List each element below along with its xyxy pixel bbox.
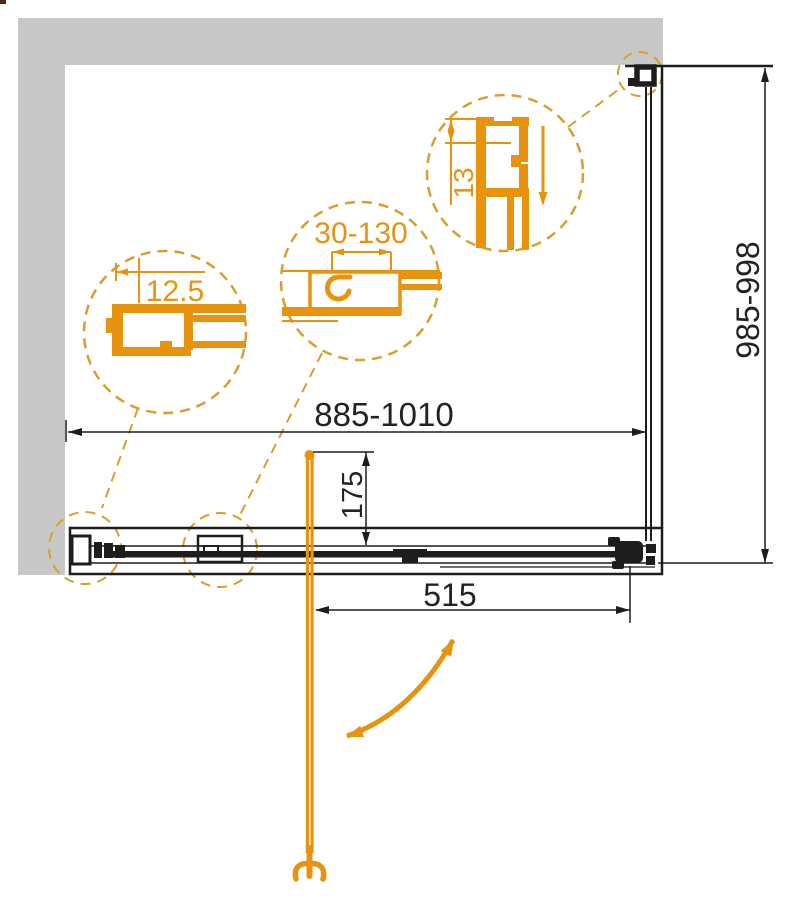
dim-door-width-label: 515 bbox=[423, 577, 476, 613]
dim-arrow bbox=[68, 428, 82, 436]
dim-arrow bbox=[632, 428, 646, 436]
leader-left bbox=[102, 408, 138, 508]
sliding-door-glass bbox=[112, 551, 618, 558]
dim-arrow bbox=[448, 131, 455, 142]
dim-handle-label: 175 bbox=[337, 471, 369, 519]
technical-drawing-page: 12.5 30-130 13 bbox=[0, 0, 791, 900]
drawing-canvas: 12.5 30-130 13 bbox=[0, 0, 791, 900]
dim-width: 885-1010 bbox=[66, 396, 646, 442]
detail-right-profile: 13 bbox=[445, 117, 548, 250]
guide-block bbox=[393, 549, 427, 557]
dim-height-label: 985-998 bbox=[730, 241, 766, 358]
handle bbox=[295, 450, 323, 879]
dim-arrow bbox=[362, 532, 370, 545]
dim-height: 985-998 bbox=[658, 68, 773, 563]
dim-arrow bbox=[315, 606, 329, 614]
handle-foot bbox=[295, 848, 323, 879]
dim-handle-distance: 175 bbox=[313, 452, 374, 545]
glass-direction-arrow bbox=[539, 192, 548, 206]
dim-width-label: 885-1010 bbox=[314, 396, 453, 433]
detail-circle-track-middle bbox=[183, 513, 257, 587]
dim-arrow bbox=[616, 606, 630, 614]
detail-middle-label: 30-130 bbox=[314, 217, 407, 250]
wall-bracket-section bbox=[637, 67, 654, 84]
detail-left-profile: 12.5 bbox=[106, 258, 246, 356]
detail-middle-profile: 30-130 bbox=[282, 217, 442, 321]
dim-arrow bbox=[362, 453, 370, 466]
frame-linework bbox=[70, 66, 773, 574]
detail-right-label: 13 bbox=[448, 167, 479, 198]
wall-profile-section bbox=[72, 536, 90, 564]
detail-left-label: 12.5 bbox=[146, 275, 204, 308]
leader-middle bbox=[240, 353, 322, 515]
top-bracket bbox=[628, 67, 654, 86]
swing-arrow bbox=[344, 636, 459, 743]
dim-arrow bbox=[448, 120, 455, 131]
corner-artifact bbox=[0, 0, 6, 4]
dim-arrow bbox=[761, 68, 769, 82]
leader-right bbox=[568, 87, 622, 127]
dim-arrow bbox=[116, 269, 128, 276]
dim-arrow bbox=[761, 549, 769, 563]
